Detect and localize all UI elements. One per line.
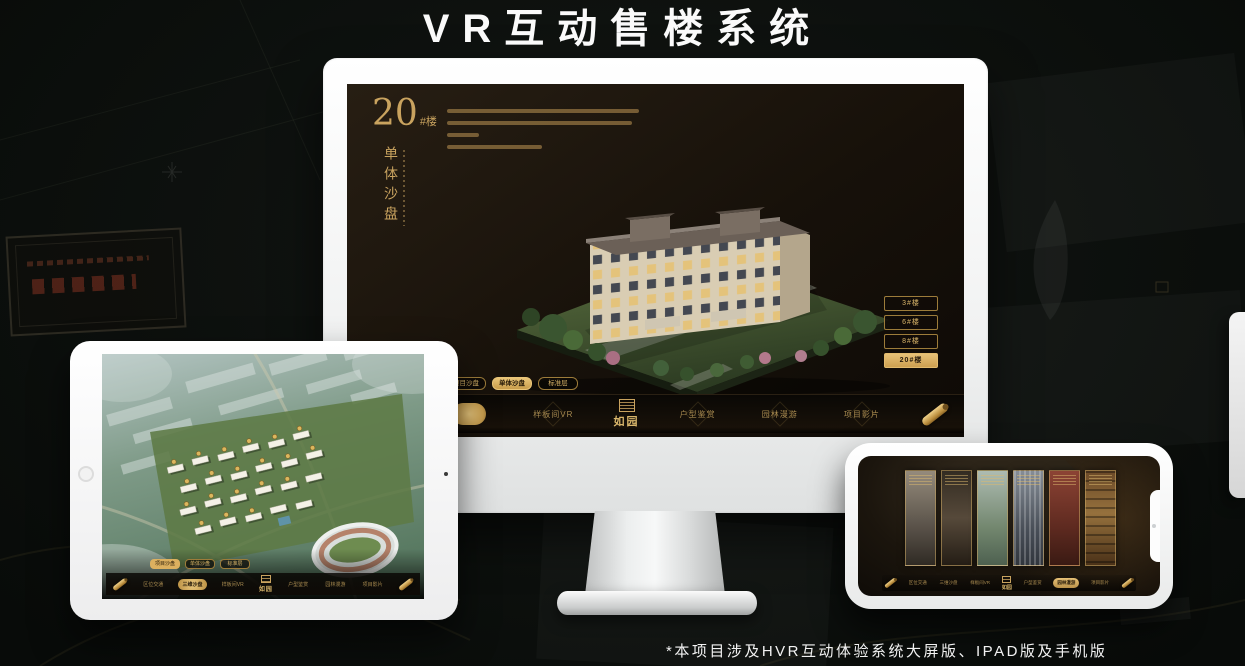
scroll-icon[interactable] xyxy=(884,577,897,588)
seal-icon xyxy=(261,575,271,583)
tab-project-sandbox[interactable]: 项目沙盘 xyxy=(150,559,180,569)
tab-single-sandbox[interactable]: 单体沙盘 xyxy=(492,377,532,390)
nav-item-project-film[interactable]: 项目影片 xyxy=(838,405,886,424)
panorama-card-5[interactable] xyxy=(1049,470,1080,566)
tablet-screen: 项目沙盘 单体沙盘 标准层 区位交通 三维沙盘 样板间VR 如园 户型鉴赏 园林… xyxy=(102,354,424,599)
description-paragraph xyxy=(447,109,643,157)
unit-number: 20 xyxy=(372,93,418,134)
tablet-nav-bar: 区位交通 三维沙盘 样板间VR 如园 户型鉴赏 园林漫游 项目影片 xyxy=(106,573,420,595)
seal-icon xyxy=(619,399,635,412)
nav-item-location[interactable]: 区位交通 xyxy=(141,579,165,590)
nav-item-floorplans[interactable]: 户型鉴赏 xyxy=(674,405,722,424)
panorama-card-row xyxy=(905,470,1116,566)
unit-heading: 20#楼 xyxy=(372,96,437,132)
footnote: *本项目涉及HVR互动体验系统大屏版、IPAD版及手机版 xyxy=(666,640,1107,661)
unit-suffix: #楼 xyxy=(420,116,437,128)
building-3d-render[interactable] xyxy=(465,160,935,395)
sandbox-sub-tabs: 项目沙盘 单体沙盘 标准层 xyxy=(446,377,578,390)
home-button[interactable] xyxy=(78,466,94,482)
tablet-sub-tabs: 项目沙盘 单体沙盘 标准层 xyxy=(150,559,250,569)
nav-item-garden-tour[interactable]: 园林漫游 xyxy=(756,405,804,424)
scroll-icon[interactable] xyxy=(920,401,949,427)
scroll-icon[interactable] xyxy=(398,577,414,591)
nav-item-model-room-vr[interactable]: 样板间VR xyxy=(969,578,991,588)
nav-item-model-room-vr[interactable]: 样板间VR xyxy=(527,405,579,424)
monitor-stand xyxy=(585,511,725,595)
tab-standard-floor[interactable]: 标准层 xyxy=(220,559,250,569)
brand-logo-text: 如园 xyxy=(1002,584,1012,591)
panorama-card-1[interactable] xyxy=(905,470,936,566)
nav-item-floorplans[interactable]: 户型鉴赏 xyxy=(286,579,310,590)
panorama-card-4[interactable] xyxy=(1013,470,1044,566)
description-line xyxy=(447,109,639,113)
description-line xyxy=(447,145,542,149)
scroll-icon[interactable] xyxy=(1121,577,1134,588)
tablet-device: 项目沙盘 单体沙盘 标准层 区位交通 三维沙盘 样板间VR 如园 户型鉴赏 园林… xyxy=(70,341,458,620)
brand-logo-text: 如园 xyxy=(259,584,273,593)
floor-button-8[interactable]: 8#楼 xyxy=(884,334,938,349)
background-card-edge xyxy=(1229,312,1245,498)
brand-logo: 如园 xyxy=(259,575,273,593)
tab-single-sandbox[interactable]: 单体沙盘 xyxy=(185,559,215,569)
nav-item-garden-tour[interactable]: 园林漫游 xyxy=(1053,578,1079,588)
nav-item-location[interactable]: 区位交通 xyxy=(908,578,928,588)
brand-logo: 如园 xyxy=(1002,576,1012,591)
description-line xyxy=(447,133,479,137)
nav-item-project-film[interactable]: 项目影片 xyxy=(1090,578,1110,588)
monitor-base xyxy=(557,591,757,615)
floor-button-3[interactable]: 3#楼 xyxy=(884,296,938,311)
phone-device: 区位交通 三维沙盘 样板间VR 如园 户型鉴赏 园林漫游 项目影片 xyxy=(845,443,1173,609)
brand-logo-text: 如园 xyxy=(614,413,640,429)
notch xyxy=(1150,490,1160,562)
nav-item-3d-sandbox[interactable]: 三维沙盘 xyxy=(178,579,206,590)
floor-button-20[interactable]: 20#楼 xyxy=(884,353,938,368)
nav-item-3d-sandbox[interactable]: 三维沙盘 xyxy=(939,578,959,588)
panorama-card-2[interactable] xyxy=(941,470,972,566)
camera-icon xyxy=(1152,524,1156,528)
camera-icon xyxy=(444,472,448,476)
nav-item-garden-tour[interactable]: 园林漫游 xyxy=(323,579,347,590)
nav-item-floorplans[interactable]: 户型鉴赏 xyxy=(1023,578,1043,588)
floor-button-6[interactable]: 6#楼 xyxy=(884,315,938,330)
description-line xyxy=(447,121,632,125)
poster: VR互动售楼系统 20#楼 单体沙盘 xyxy=(0,0,1245,666)
panorama-card-6[interactable] xyxy=(1085,470,1116,566)
phone-nav-bar: 区位交通 三维沙盘 样板间VR 如园 户型鉴赏 园林漫游 项目影片 xyxy=(882,575,1136,591)
scroll-icon[interactable] xyxy=(112,577,128,591)
panel-title-english-decor xyxy=(403,150,405,226)
nav-item-model-room-vr[interactable]: 样板间VR xyxy=(220,579,246,590)
panorama-card-3[interactable] xyxy=(977,470,1008,566)
brand-logo: 如园 xyxy=(614,399,640,429)
tab-standard-floor[interactable]: 标准层 xyxy=(538,377,578,390)
nav-item-project-film[interactable]: 项目影片 xyxy=(361,579,385,590)
seal-icon xyxy=(1002,576,1011,583)
page-title: VR互动售楼系统 xyxy=(0,0,1245,56)
phone-screen: 区位交通 三维沙盘 样板间VR 如园 户型鉴赏 园林漫游 项目影片 xyxy=(858,456,1160,596)
floor-button-stack: 3#楼 6#楼 8#楼 20#楼 xyxy=(884,296,938,372)
panel-title-vertical: 单体沙盘 xyxy=(381,146,401,226)
background-plaque xyxy=(6,227,187,336)
